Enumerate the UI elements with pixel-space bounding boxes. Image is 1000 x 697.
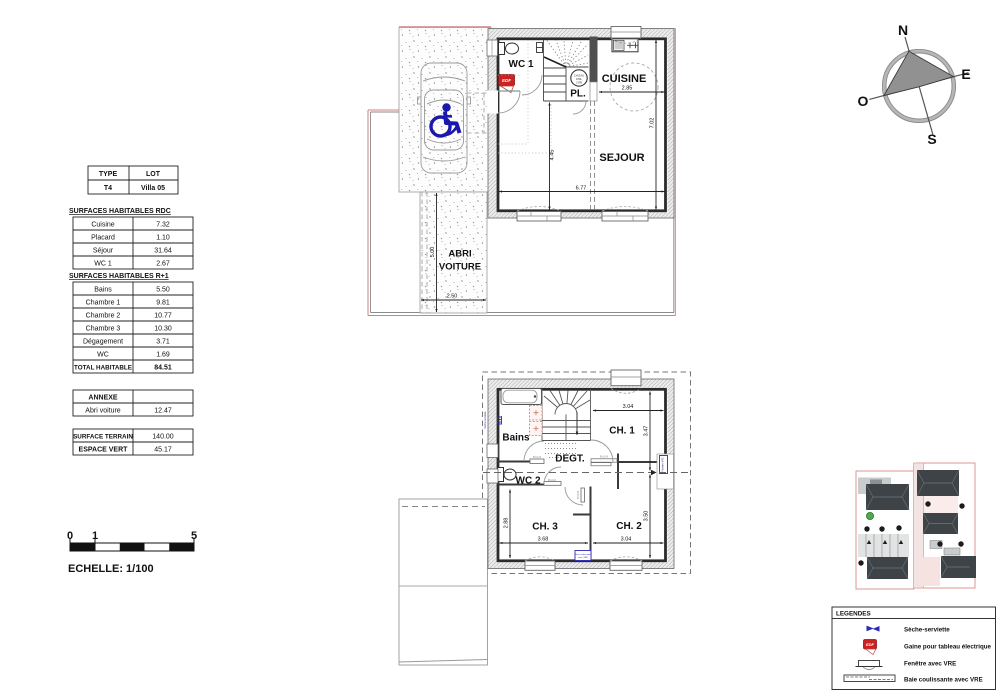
svg-text:ABRI: ABRI xyxy=(448,249,471,260)
svg-text:Bains: Bains xyxy=(502,433,530,444)
svg-text:Fenêtre VRE: Fenêtre VRE xyxy=(662,457,665,472)
svg-text:3.71: 3.71 xyxy=(156,339,170,346)
svg-text:TOTAL HABITABLE: TOTAL HABITABLE xyxy=(74,365,132,372)
svg-text:SURFACES HABITABLES R+1: SURFACES HABITABLES R+1 xyxy=(69,273,169,280)
svg-text:WC 1: WC 1 xyxy=(94,261,112,268)
svg-text:Chambre 1: Chambre 1 xyxy=(86,300,121,307)
svg-text:Dégagement: Dégagement xyxy=(83,339,123,346)
svg-text:3.50: 3.50 xyxy=(644,511,650,522)
svg-text:EDF: EDF xyxy=(866,642,875,647)
svg-text:80x2.04: 80x2.04 xyxy=(548,480,557,482)
svg-text:3.68: 3.68 xyxy=(538,537,549,543)
svg-text:9.81: 9.81 xyxy=(156,300,170,307)
svg-text:Bains: Bains xyxy=(94,287,112,294)
svg-text:2.85: 2.85 xyxy=(622,86,633,92)
svg-text:WC 1: WC 1 xyxy=(509,59,534,70)
svg-text:Chambre 3: Chambre 3 xyxy=(86,326,121,333)
svg-text:VOITURE: VOITURE xyxy=(439,262,481,273)
svg-text:Placard: Placard xyxy=(91,235,115,242)
svg-text:avec VRE: avec VRE xyxy=(578,557,588,559)
svg-text:SURFACES HABITABLES RDC: SURFACES HABITABLES RDC xyxy=(69,208,171,215)
svg-text:Séjour: Séjour xyxy=(93,248,114,255)
svg-text:90x2.04: 90x2.04 xyxy=(600,457,609,459)
svg-text:80x2.04: 80x2.04 xyxy=(578,490,580,499)
svg-text:E: E xyxy=(961,66,970,82)
svg-text:2.50: 2.50 xyxy=(447,294,458,300)
svg-text:Cuisine: Cuisine xyxy=(91,222,114,229)
svg-text:ANNEXE: ANNEXE xyxy=(88,395,118,402)
svg-text:7.02: 7.02 xyxy=(650,118,656,129)
svg-text:90x2.04: 90x2.04 xyxy=(533,457,542,459)
svg-text:Sèche-serviette: Sèche-serviette xyxy=(484,411,487,429)
svg-text:ECHELLE: 1/100: ECHELLE: 1/100 xyxy=(68,563,154,575)
svg-text:7.32: 7.32 xyxy=(156,222,170,229)
svg-text:T4: T4 xyxy=(104,185,112,192)
svg-text:Baie coulissante: Baie coulissante xyxy=(575,553,592,556)
svg-text:3.47: 3.47 xyxy=(644,426,650,437)
svg-text:Villa 05: Villa 05 xyxy=(141,185,165,192)
svg-text:4.45: 4.45 xyxy=(550,150,556,161)
svg-text:2.88: 2.88 xyxy=(504,518,510,529)
svg-text:WC: WC xyxy=(97,352,109,359)
svg-text:WC 2: WC 2 xyxy=(516,476,541,487)
svg-text:Gaine pour tableau électrique: Gaine pour tableau électrique xyxy=(904,644,992,651)
svg-text:3.04: 3.04 xyxy=(623,404,634,410)
svg-text:5.00: 5.00 xyxy=(430,247,436,258)
svg-text:SURFACE TERRAIN: SURFACE TERRAIN xyxy=(73,434,133,441)
svg-text:LEGENDES: LEGENDES xyxy=(836,611,871,618)
svg-text:12.47: 12.47 xyxy=(154,408,172,415)
svg-text:O: O xyxy=(858,93,869,109)
svg-text:CH.EAU: CH.EAU xyxy=(574,74,584,78)
svg-text:2.67: 2.67 xyxy=(156,261,170,268)
svg-text:Baie coulissante avec VRE: Baie coulissante avec VRE xyxy=(904,677,983,684)
svg-text:CH. 2: CH. 2 xyxy=(616,521,642,532)
svg-text:CH. 3: CH. 3 xyxy=(532,522,558,533)
svg-text:Fenêtre avec VRE: Fenêtre avec VRE xyxy=(904,661,956,668)
svg-text:84.51: 84.51 xyxy=(154,365,172,372)
svg-text:1.10: 1.10 xyxy=(156,235,170,242)
svg-text:31.64: 31.64 xyxy=(154,248,172,255)
svg-text:150L: 150L xyxy=(576,77,582,81)
svg-text:N: N xyxy=(898,22,908,38)
svg-text:10.77: 10.77 xyxy=(154,313,172,320)
svg-text:Sèche-serviette: Sèche-serviette xyxy=(904,627,950,634)
svg-text:S: S xyxy=(927,131,936,147)
svg-text:DEGT.: DEGT. xyxy=(555,454,585,465)
svg-text:5.50: 5.50 xyxy=(156,287,170,294)
svg-text:CH. 1: CH. 1 xyxy=(609,426,635,437)
svg-text:2 PB: 2 PB xyxy=(576,81,582,85)
svg-text:ESPACE VERT: ESPACE VERT xyxy=(79,447,129,454)
svg-text:Chambre 2: Chambre 2 xyxy=(86,313,121,320)
svg-text:10.30: 10.30 xyxy=(154,326,172,333)
svg-text:3.04: 3.04 xyxy=(621,537,632,543)
svg-text:1.69: 1.69 xyxy=(156,352,170,359)
svg-text:45.17: 45.17 xyxy=(154,447,172,454)
svg-text:Abri voiture: Abri voiture xyxy=(85,408,121,415)
svg-text:PL.: PL. xyxy=(570,89,586,100)
svg-text:EDF: EDF xyxy=(502,78,511,83)
svg-text:TYPE: TYPE xyxy=(99,171,118,178)
svg-text:CUISINE: CUISINE xyxy=(602,73,647,85)
svg-text:140.00: 140.00 xyxy=(152,434,174,441)
svg-text:6.77: 6.77 xyxy=(576,186,587,192)
svg-text:LOT: LOT xyxy=(146,171,161,178)
svg-text:SEJOUR: SEJOUR xyxy=(599,152,644,164)
